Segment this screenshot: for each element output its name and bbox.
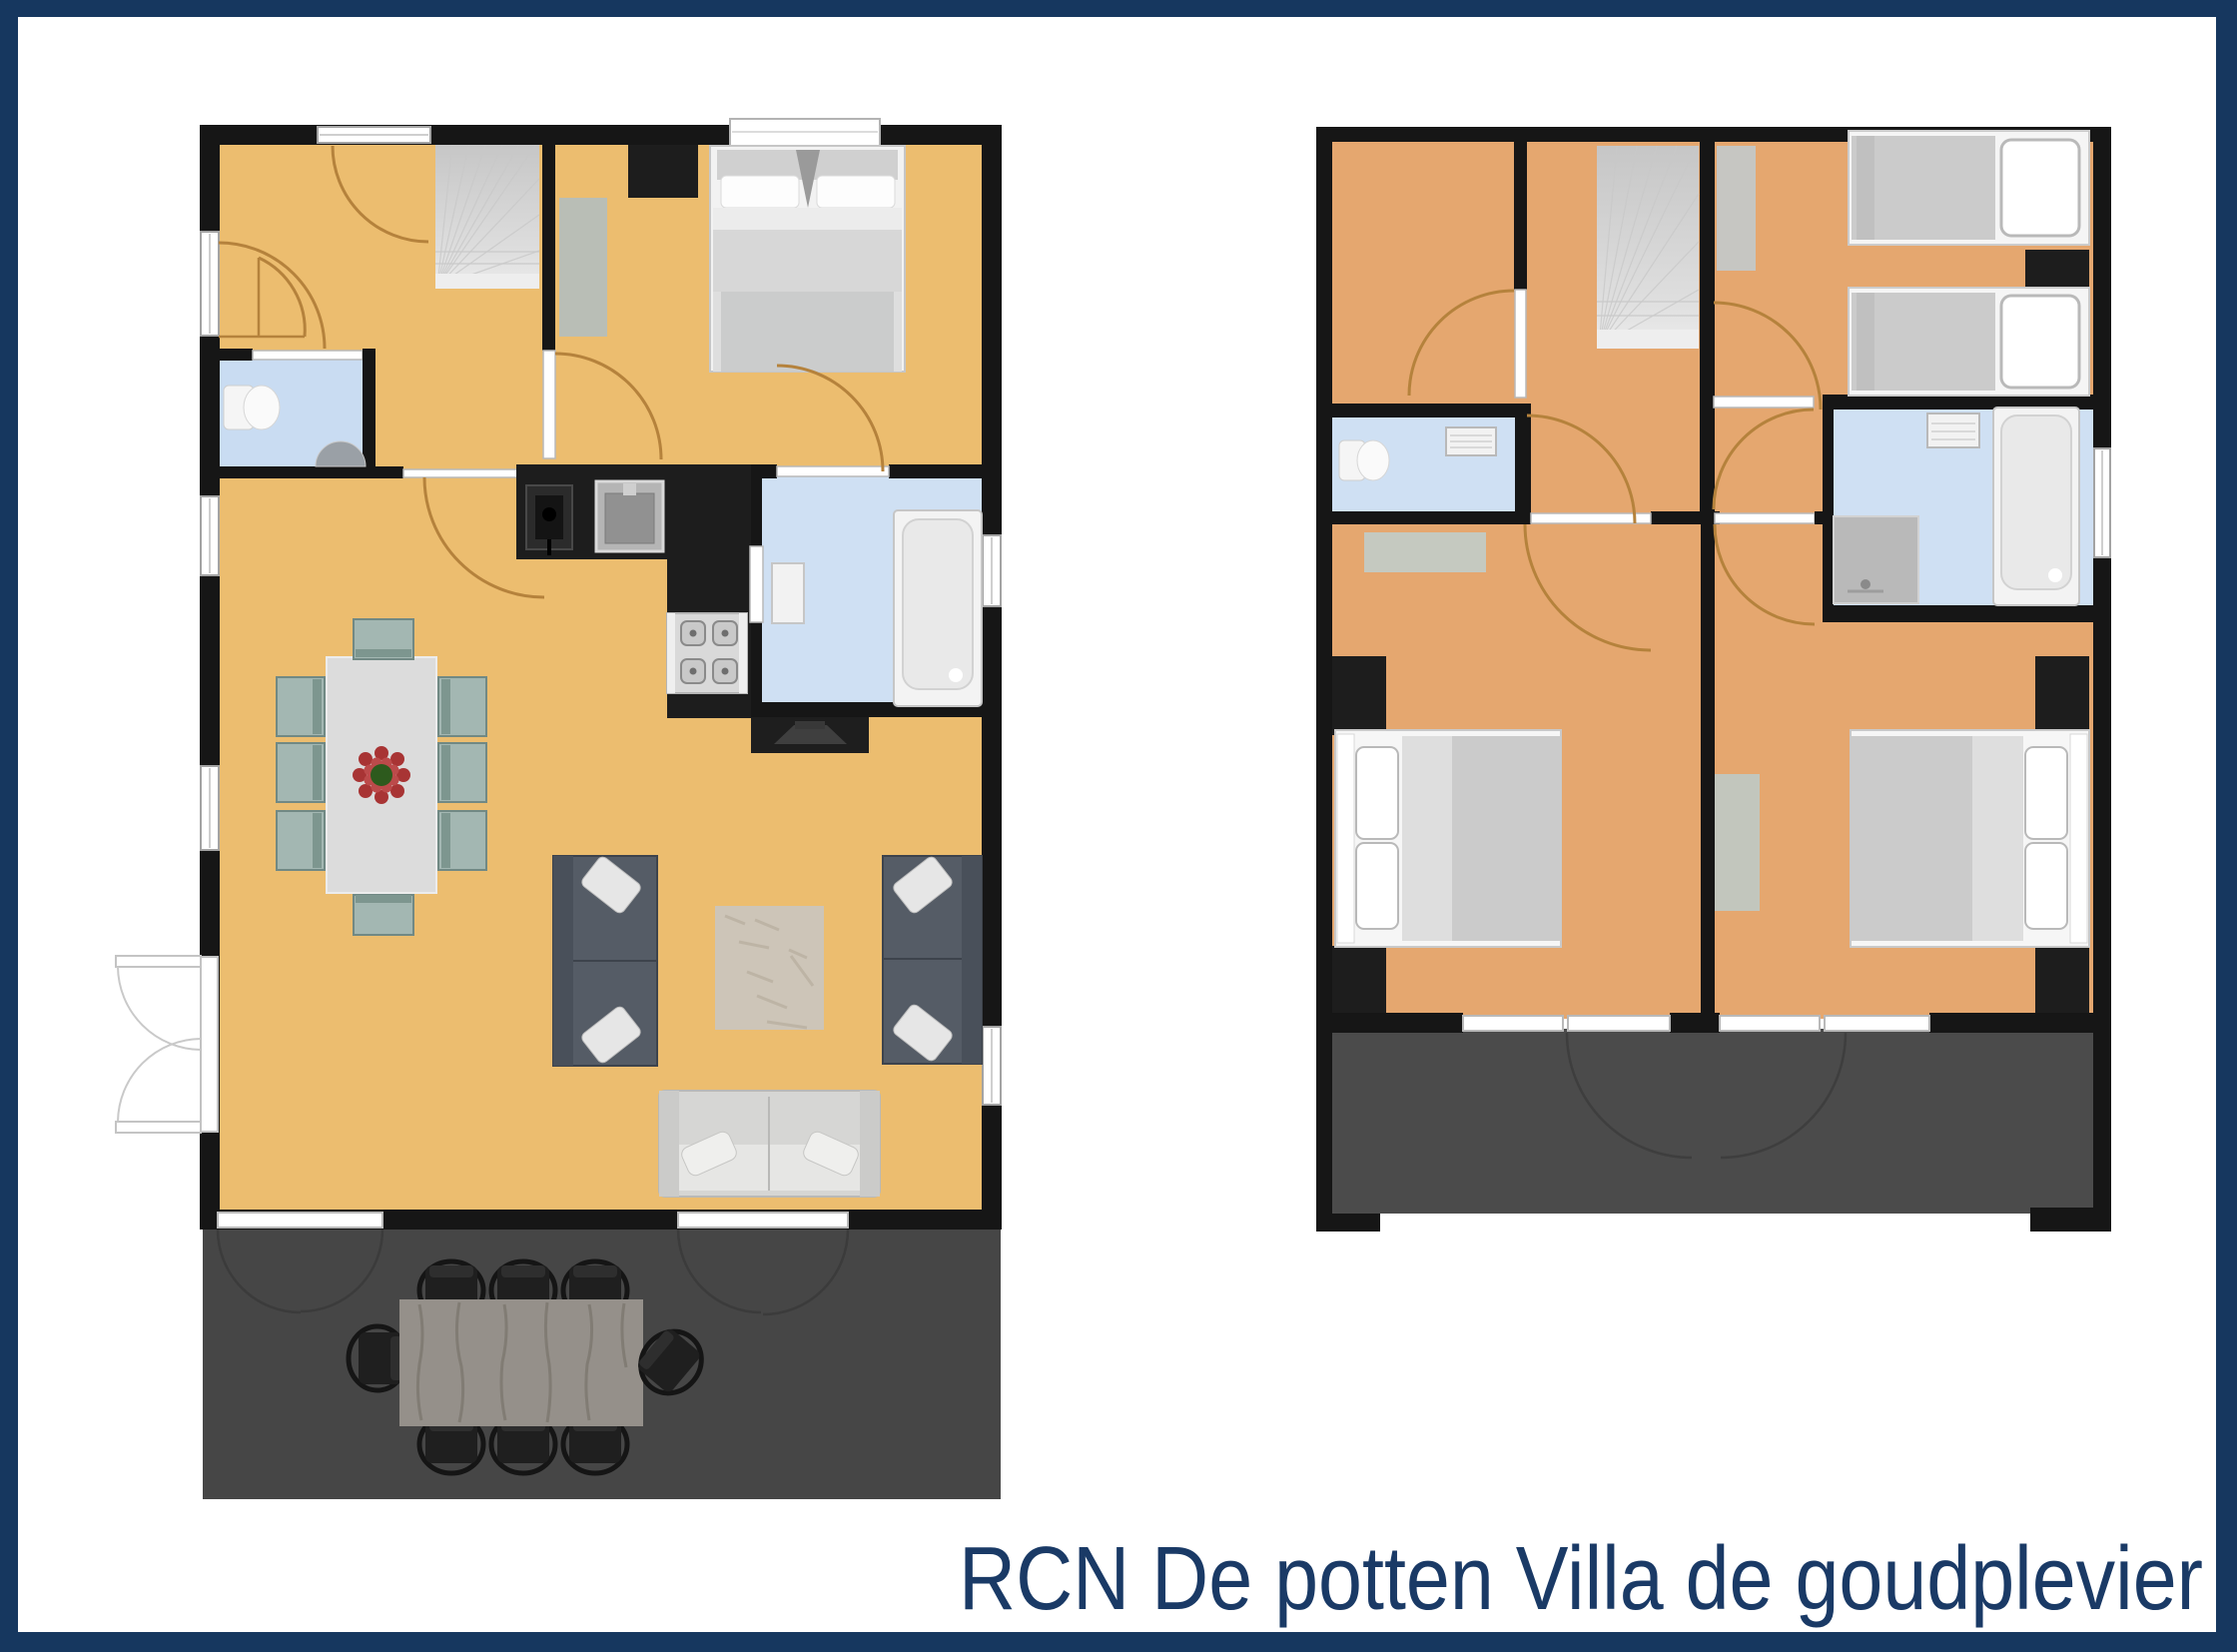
svg-text:RCN De potten Villa de goudple: RCN De potten Villa de goudplevier	[959, 1529, 2203, 1629]
